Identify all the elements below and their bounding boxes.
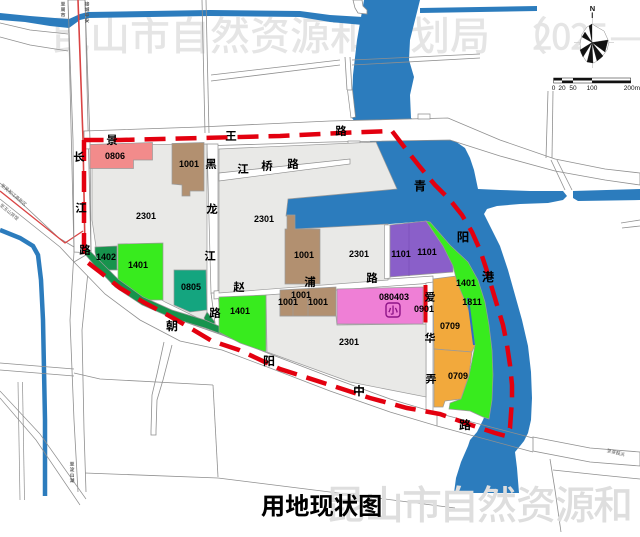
svg-text:0901: 0901 — [414, 304, 434, 314]
svg-text:20: 20 — [558, 85, 566, 92]
svg-text:2301: 2301 — [254, 214, 274, 224]
svg-text:1402: 1402 — [96, 252, 116, 262]
svg-text:2301: 2301 — [339, 337, 359, 347]
svg-text:0709: 0709 — [440, 321, 460, 331]
svg-text:50: 50 — [569, 85, 577, 92]
svg-text:0806: 0806 — [105, 151, 125, 161]
svg-text:0: 0 — [552, 85, 556, 92]
svg-text:1401: 1401 — [128, 260, 148, 270]
svg-text:2301: 2301 — [349, 249, 369, 259]
svg-text:1001: 1001 — [179, 159, 199, 169]
svg-text:100: 100 — [587, 85, 598, 92]
svg-text:0709: 0709 — [448, 371, 468, 381]
svg-text:1001: 1001 — [278, 297, 298, 307]
svg-text:0805: 0805 — [181, 282, 201, 292]
svg-text:1101: 1101 — [417, 247, 437, 257]
svg-text:080403: 080403 — [379, 292, 409, 302]
svg-text:1811: 1811 — [462, 297, 482, 307]
svg-text:N: N — [590, 4, 595, 13]
svg-text:1001: 1001 — [308, 297, 328, 307]
svg-text:1001: 1001 — [294, 250, 314, 260]
svg-text:200m: 200m — [624, 85, 640, 92]
svg-text:1101: 1101 — [391, 249, 411, 259]
svg-text:1401: 1401 — [230, 306, 250, 316]
svg-text:1401: 1401 — [456, 278, 476, 288]
svg-text:2301: 2301 — [136, 211, 156, 221]
